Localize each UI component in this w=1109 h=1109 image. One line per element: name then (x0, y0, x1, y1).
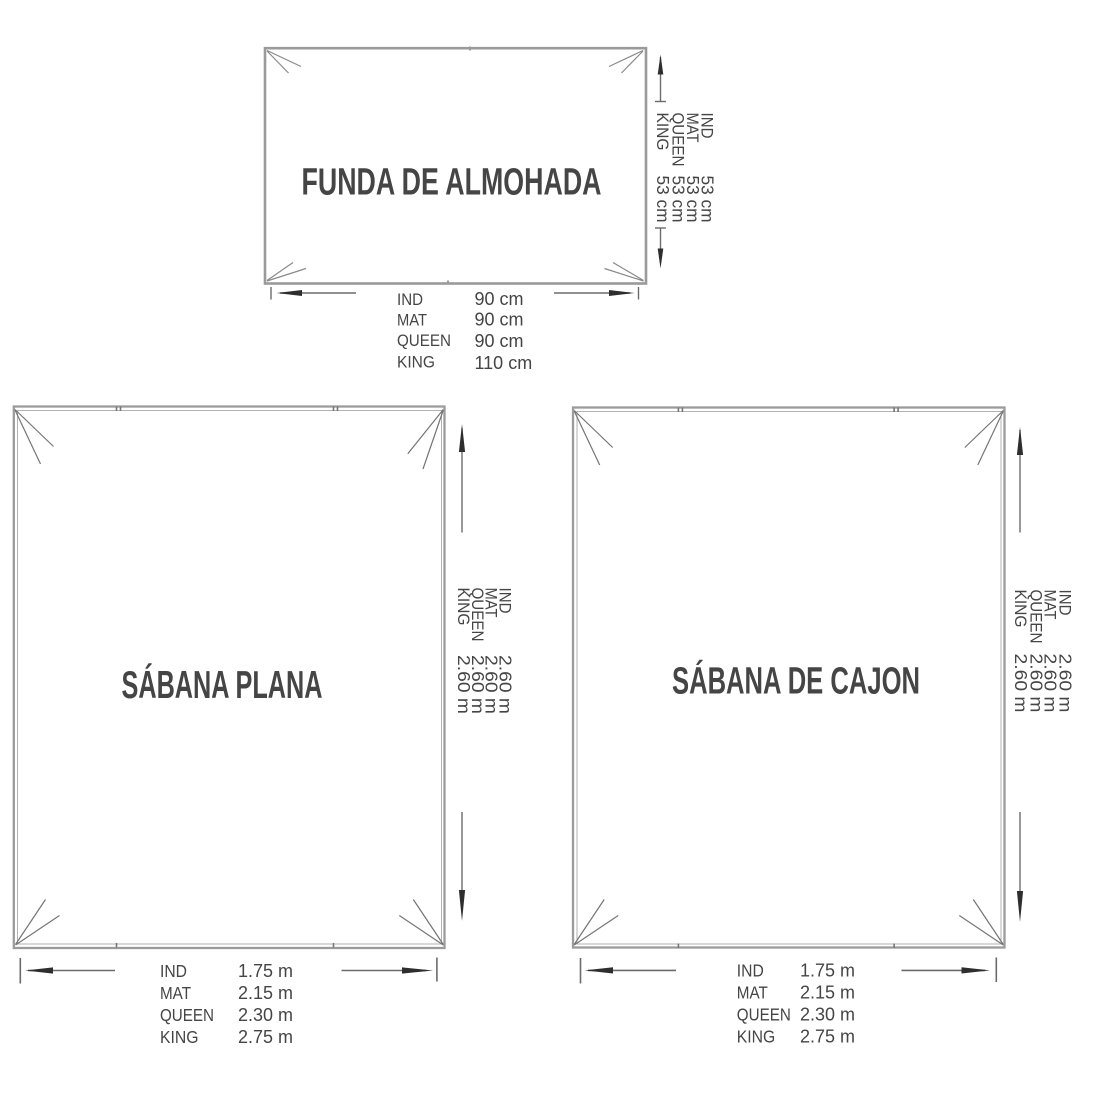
svg-text:1.75 m: 1.75 m (238, 961, 293, 981)
svg-text:KING: KING (653, 113, 672, 151)
svg-text:IND: IND (160, 961, 187, 981)
svg-text:SÁBANA PLANA: SÁBANA PLANA (122, 663, 323, 707)
svg-text:QUEEN: QUEEN (737, 1005, 791, 1025)
svg-text:2.60 m: 2.60 m (1011, 654, 1031, 713)
svg-text:MAT: MAT (160, 983, 191, 1003)
svg-text:53 cm: 53 cm (653, 176, 673, 223)
svg-text:2.30 m: 2.30 m (238, 1005, 293, 1025)
svg-text:FUNDA DE ALMOHADA: FUNDA DE ALMOHADA (302, 162, 602, 204)
svg-text:110 cm: 110 cm (475, 353, 533, 373)
svg-text:QUEEN: QUEEN (160, 1005, 214, 1025)
svg-text:IND: IND (737, 961, 764, 981)
svg-text:SÁBANA DE CAJON: SÁBANA DE CAJON (672, 659, 920, 703)
svg-text:KING: KING (160, 1027, 199, 1047)
svg-text:90 cm: 90 cm (475, 289, 524, 309)
svg-text:1.75 m: 1.75 m (800, 961, 855, 981)
svg-text:MAT: MAT (397, 310, 427, 329)
svg-text:90 cm: 90 cm (475, 309, 524, 329)
svg-text:QUEEN: QUEEN (397, 331, 451, 350)
svg-text:MAT: MAT (737, 983, 768, 1003)
svg-text:2.15 m: 2.15 m (800, 983, 855, 1003)
svg-text:2.30 m: 2.30 m (800, 1005, 855, 1025)
svg-text:2.60 m: 2.60 m (454, 655, 474, 714)
svg-text:2.15 m: 2.15 m (238, 983, 293, 1003)
svg-text:IND: IND (397, 290, 423, 309)
svg-text:KING: KING (397, 353, 435, 372)
svg-text:KING: KING (454, 588, 473, 626)
svg-text:2.75 m: 2.75 m (800, 1027, 855, 1047)
svg-text:90 cm: 90 cm (475, 331, 524, 351)
svg-text:2.75 m: 2.75 m (238, 1027, 293, 1047)
svg-text:KING: KING (737, 1027, 776, 1047)
svg-text:KING: KING (1011, 590, 1030, 628)
